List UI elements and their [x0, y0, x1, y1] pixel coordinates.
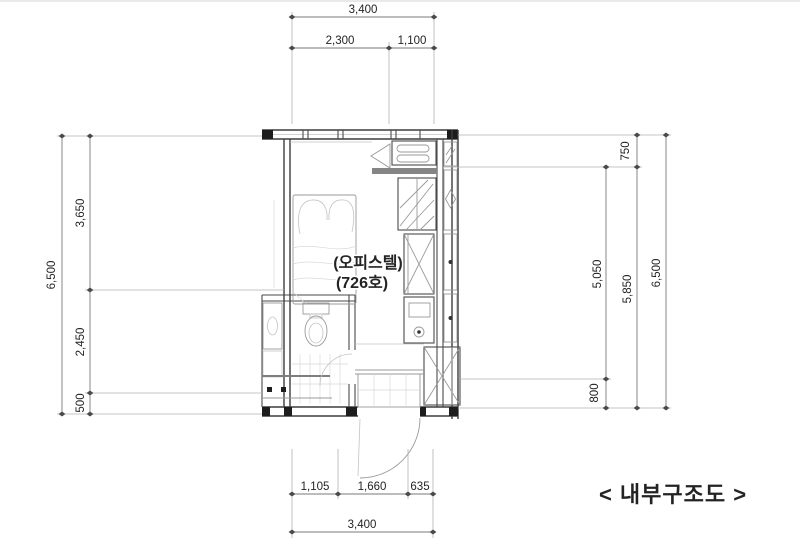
- shaft-x-box: [424, 347, 460, 405]
- dim-top-left: 2,300: [326, 35, 355, 47]
- room-number-label: (726호): [336, 274, 388, 292]
- bathroom-floor-tiles: [262, 354, 348, 404]
- entry-door-swing: [358, 418, 420, 478]
- dim-top-right: 1,100: [398, 35, 427, 47]
- floor-plan-drawing: 3,400 2,300 1,100 1,105 1,660 635 3,400 …: [0, 2, 800, 558]
- dim-top-total: 3,400: [349, 4, 378, 16]
- furniture: [262, 141, 460, 478]
- dim-bottom-total: 3,400: [348, 519, 377, 531]
- washbasin-column: [263, 303, 282, 377]
- dim-bottom-3: 635: [410, 481, 429, 493]
- dim-left-lower: 500: [75, 393, 87, 412]
- kitchen-counter: [371, 141, 437, 174]
- drawing-title: < 내부구조도 >: [599, 482, 747, 507]
- floor-plan-page: 3,400 2,300 1,100 1,105 1,660 635 3,400 …: [0, 0, 800, 558]
- room-name-label: (오피스텔): [333, 253, 403, 272]
- dim-right-middle: 5,850: [622, 275, 634, 304]
- dim-left-middle: 2,450: [75, 328, 87, 357]
- closet-x-box: [404, 234, 434, 294]
- bathroom-door-swing: [320, 354, 352, 386]
- dim-right-lower: 800: [589, 383, 601, 402]
- dim-right-overall: 6,500: [651, 259, 663, 288]
- hatched-cabinet: [398, 178, 436, 230]
- dim-right-upper: 750: [620, 141, 632, 160]
- washer-symbol: [404, 297, 434, 343]
- toilet-symbol: [303, 303, 329, 346]
- entry-hall-tiles: [355, 370, 425, 407]
- dim-right-inner: 5,050: [592, 260, 604, 289]
- dim-bottom-2: 1,660: [358, 481, 387, 493]
- dim-left-overall: 6,500: [46, 261, 58, 290]
- dim-left-upper: 3,650: [75, 199, 87, 228]
- text-labels: (오피스텔) (726호) < 내부구조도 >: [333, 253, 747, 507]
- dim-bottom-1: 1,105: [301, 481, 330, 493]
- corridor-column-boxes: [444, 142, 457, 342]
